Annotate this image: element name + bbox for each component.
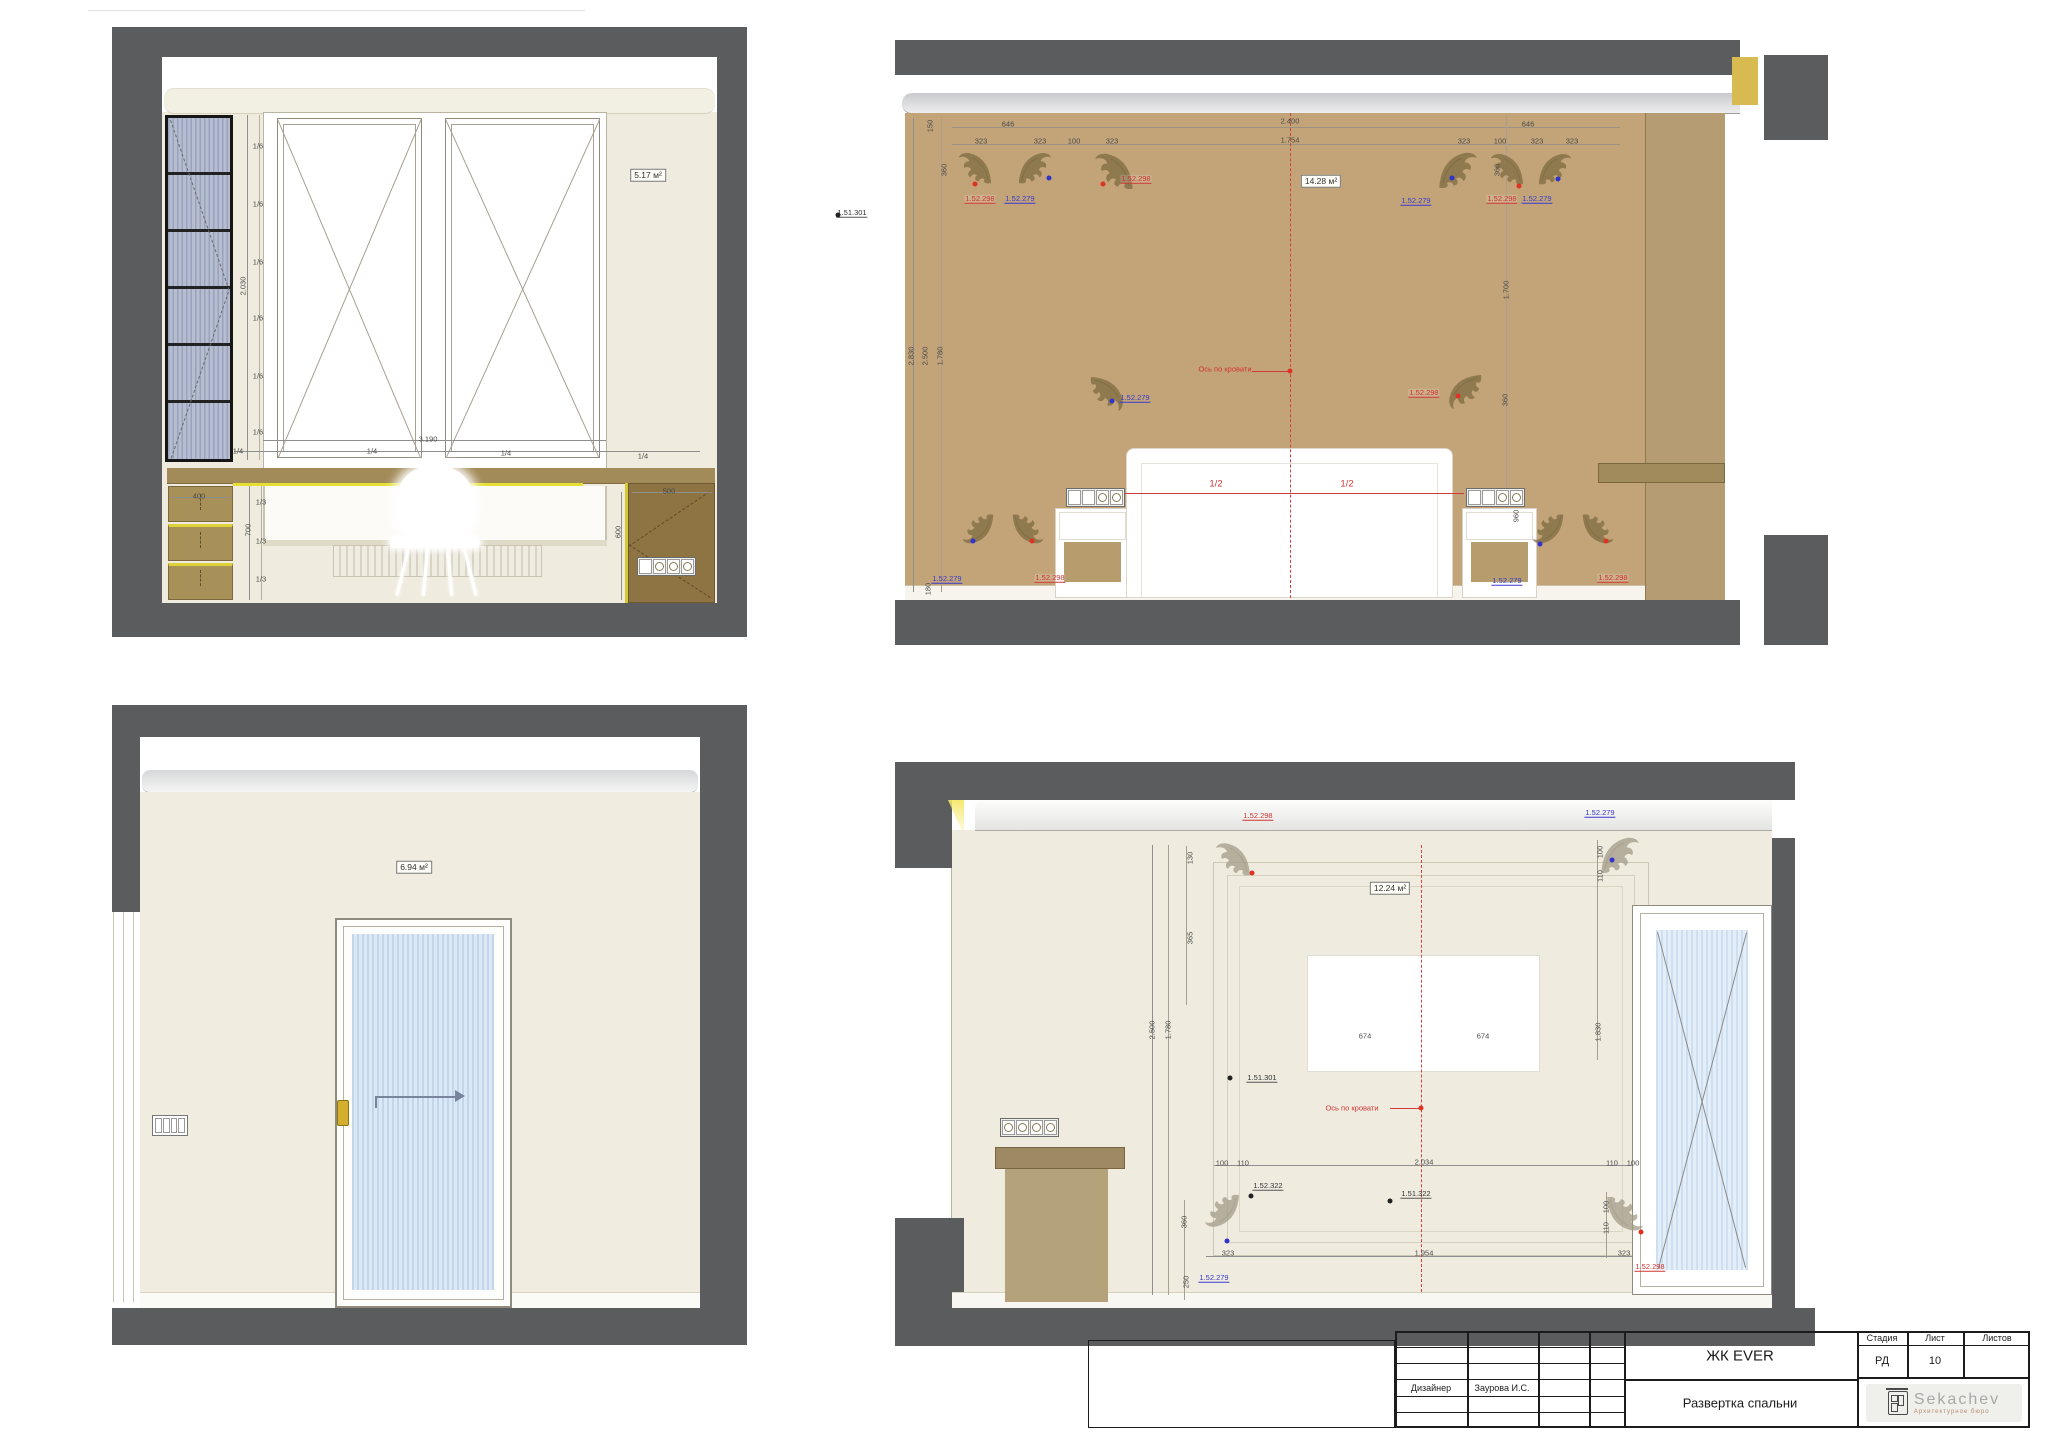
sekachev-logo: Sekachev Архитектурное бюро (1866, 1384, 2022, 1422)
dim-label: 2.030 (239, 277, 247, 296)
logo-text: Sekachev (1914, 1391, 2000, 1409)
ref-label: 1.51.322 (1400, 1190, 1431, 1199)
dim-label: 400 (193, 492, 206, 500)
dim-label: 130 (1186, 852, 1194, 865)
dim-label: 646 (1002, 120, 1015, 128)
dim-label: 1/3 (256, 575, 266, 583)
wall-section (1764, 55, 1828, 140)
ceiling-light (1732, 57, 1758, 105)
ref-label: 1.52.322 (1252, 1182, 1283, 1191)
ref-dot (971, 539, 976, 544)
project-name: ЖК EVER (1706, 1348, 1774, 1365)
ornament-icon (960, 512, 996, 548)
dim-label: 1/6 (253, 142, 263, 150)
radiator (333, 545, 542, 577)
dim-label: 180 (924, 583, 932, 596)
dim-line (1186, 846, 1187, 1005)
logo-subtext: Архитектурное бюро (1914, 1409, 2000, 1415)
wall-section (700, 705, 747, 1345)
revision-table (1088, 1340, 1395, 1428)
dim-label: 1/4 (638, 452, 648, 460)
tv-panel (1307, 955, 1540, 1072)
dim-line (249, 486, 250, 600)
ref-dot (1517, 184, 1522, 189)
dim-label: 323 (1106, 137, 1119, 145)
ornament-icon (1436, 147, 1480, 191)
ornament-icon (1202, 1192, 1242, 1232)
crown-molding (142, 770, 698, 793)
ref-label: 1.51.301 (1246, 1074, 1277, 1083)
ref-dot (1228, 1076, 1233, 1081)
floor-slab (895, 600, 1740, 645)
door-frame-edge (123, 912, 124, 1302)
dim-line (234, 451, 700, 452)
dim-label: 1.700 (1502, 281, 1510, 300)
dim-label: 100 (1068, 137, 1081, 145)
dim-label: 110 (1606, 1159, 1618, 1167)
ref-label: 1.52.298 (1120, 175, 1151, 184)
ceiling-slab (112, 705, 747, 737)
stamp-line (1963, 1331, 1965, 1377)
area-label: 5.17 м² (630, 169, 666, 182)
dim-label: 360 (940, 164, 948, 177)
dim-label: 323 (1034, 137, 1047, 145)
ref-dot (1450, 176, 1455, 181)
ref-dot (1556, 177, 1561, 182)
dim-label: 100 (1602, 1201, 1610, 1214)
dim-label: 1/6 (253, 372, 263, 380)
ref-dot (1538, 542, 1543, 547)
dim-label: 110 (1596, 870, 1604, 882)
ornament-icon (1444, 372, 1484, 412)
ref-dot (973, 182, 978, 187)
dim-label: 1.830 (1594, 1023, 1602, 1042)
ref-dot (1047, 176, 1052, 181)
ref-dot (1419, 1106, 1424, 1111)
ref-label: 1.52.298 (1408, 389, 1439, 398)
ref-dot (1456, 394, 1461, 399)
ref-dot (1639, 1230, 1644, 1235)
dim-label: 360 (1180, 1216, 1188, 1229)
ref-dot (1604, 539, 1609, 544)
dim-label: 365 (1186, 932, 1194, 945)
dim-label: 1/6 (253, 258, 263, 266)
dim-label: 1/6 (253, 428, 263, 436)
dim-label: 110 (1237, 1159, 1249, 1167)
dim-line (259, 115, 260, 460)
wall-corner-edge (951, 868, 952, 1218)
dim-label: 3.190 (419, 435, 438, 443)
ref-label: 1.52.298 (964, 195, 995, 204)
ornament-icon (1536, 149, 1574, 187)
dim-label: 1.954 (1415, 1249, 1434, 1257)
axis-leader (1252, 371, 1288, 372)
ref-dot (1225, 1239, 1230, 1244)
ref-label: 1.51.301 (836, 209, 867, 218)
floor-slab (112, 603, 747, 637)
ornament-icon (1010, 512, 1046, 548)
wall-section (1772, 838, 1795, 1310)
stamp-line (1624, 1379, 1857, 1381)
door-handle (337, 1100, 349, 1126)
switch-icon (152, 1115, 188, 1136)
door-frame-edge (113, 912, 114, 1302)
axis-line (1290, 113, 1291, 598)
ceiling-slab (895, 762, 1795, 800)
ref-label: 1.52.279 (1584, 809, 1615, 818)
dim-label: 960 (1512, 510, 1520, 523)
door-frame-edge (133, 912, 134, 1302)
ornament-icon (1092, 148, 1136, 192)
axis-leader (1390, 1108, 1419, 1109)
ref-dot (1110, 399, 1115, 404)
dim-line (621, 492, 622, 600)
dim-label: 2.830 (907, 347, 915, 366)
dim-label: 100 (1596, 846, 1604, 859)
wardrobe-glass-cabinet (165, 115, 233, 462)
nightstand (1055, 508, 1130, 598)
area-label: 14.28 м² (1301, 175, 1341, 188)
dim-label: 2.400 (1281, 117, 1300, 125)
dim-label: 323 (975, 137, 988, 145)
dim-label: 1/6 (253, 200, 263, 208)
dim-label: 2.034 (1415, 1158, 1434, 1166)
cabinet (628, 483, 715, 603)
opening-dash-line (200, 532, 201, 548)
socket-icon (637, 557, 696, 576)
drawing-title: Развертка спальни (1683, 1396, 1798, 1411)
dim-label: 323 (1618, 1249, 1631, 1257)
axis-label: Ось по кровати (1325, 1104, 1378, 1112)
dim-label: 1/3 (256, 498, 266, 506)
stage-label: Стадия (1867, 1333, 1898, 1343)
ref-dot (1101, 182, 1106, 187)
dresser-top (995, 1147, 1125, 1169)
stage-value: РД (1875, 1355, 1889, 1367)
dim-label: 2.500 (1148, 1021, 1156, 1040)
dim-line (1152, 845, 1153, 1295)
dresser (1005, 1169, 1108, 1302)
dim-line (1168, 845, 1169, 1295)
dim-label: 323 (1566, 137, 1579, 145)
ref-dot (1250, 871, 1255, 876)
dim-label: 360 (1493, 164, 1501, 177)
dim-label: 1/4 (501, 449, 511, 457)
open-direction-arrow (375, 1096, 377, 1108)
dim-label: 100 (1494, 137, 1507, 145)
sheet-value: 10 (1929, 1355, 1941, 1367)
designer-name: Заурова И.С. (1475, 1383, 1530, 1393)
crown-molding (975, 800, 1772, 831)
dim-label: 1.780 (1164, 1021, 1172, 1040)
arrowhead-icon (455, 1090, 465, 1102)
ref-dot (1388, 1199, 1393, 1204)
stamp-line (1395, 1396, 1624, 1397)
dim-label: 674 (1477, 1032, 1490, 1040)
dim-label: 700 (244, 524, 252, 537)
stamp-line (1395, 1347, 1624, 1348)
dim-label: 1.754 (1281, 136, 1300, 144)
ref-label: 1.52.279 (1004, 195, 1035, 204)
stamp-line (1395, 1363, 1624, 1364)
wall-section (717, 27, 747, 637)
area-label: 6.94 м² (396, 861, 432, 874)
open-direction-arrow (375, 1096, 460, 1098)
stamp-line (1857, 1345, 2030, 1346)
wall-shelf (1598, 463, 1725, 483)
ref-dot (1249, 1194, 1254, 1199)
dim-label: 674 (1359, 1032, 1372, 1040)
ref-label: 1.52.279 (1400, 197, 1431, 206)
desk-chair (396, 466, 474, 542)
axis-line (1421, 845, 1422, 1292)
ref-dot (1030, 539, 1035, 544)
ref-label: 1.52.298 (1634, 1263, 1665, 1272)
dim-label: 100 (1216, 1159, 1229, 1167)
dim-label: 1.780 (936, 347, 944, 366)
dim-label: 323 (1531, 137, 1544, 145)
dim-label: 323 (1222, 1249, 1235, 1257)
curtain-box (164, 88, 715, 114)
dim-line (952, 127, 1620, 128)
ornament-icon (1580, 512, 1616, 548)
wall-section (1764, 535, 1828, 645)
column-panel (1645, 113, 1725, 600)
ref-label: 1.52.298 (1034, 574, 1065, 583)
sheet-fold-line (88, 10, 585, 11)
dim-label: 500 (663, 487, 676, 495)
ref-dot (1610, 858, 1615, 863)
wall-section (112, 27, 162, 637)
area-label: 12.24 м² (1370, 882, 1410, 895)
ref-dot (1288, 369, 1293, 374)
ceiling-slab (112, 27, 747, 57)
socket-icon (1066, 488, 1125, 507)
socket-icon (1000, 1118, 1059, 1137)
ornament-icon (956, 148, 994, 186)
stamp-line (1907, 1331, 1909, 1377)
ref-dot (836, 213, 841, 218)
dim-label: 600 (614, 526, 622, 539)
ornament-icon (1530, 512, 1566, 548)
dim-label: 1/4 (233, 447, 243, 455)
ceiling-slab (895, 40, 1740, 75)
sheet-label: Лист (1925, 1333, 1945, 1343)
dim-label: 1/6 (253, 314, 263, 322)
opening-dash-line (200, 570, 201, 586)
chair-seat (390, 538, 480, 548)
dim-label: 360 (1501, 394, 1509, 407)
drawing-sheet: { "titleblock": { "project": "ЖК EVER", … (0, 0, 2048, 1448)
ref-label: 1.52.279 (1198, 1274, 1229, 1283)
dim-label: 100 (1627, 1159, 1640, 1167)
half-split-label: 1/2 (1340, 479, 1353, 489)
dim-label: 150 (926, 120, 934, 133)
ref-label: 1.52.279 (1491, 577, 1522, 586)
half-split-label: 1/2 (1209, 479, 1222, 489)
dim-label: 250 (1182, 1276, 1190, 1289)
ref-label: 1.52.298 (1597, 574, 1628, 583)
socket-icon (1466, 488, 1525, 507)
crown-molding (902, 93, 1740, 114)
sheets-label: Листов (1982, 1333, 2011, 1343)
wall-section (112, 705, 140, 912)
door-panel (352, 934, 494, 1290)
axis-label: Ось по кровати (1198, 365, 1251, 373)
dim-label: 110 (1602, 1222, 1610, 1234)
stamp-line (1857, 1377, 2030, 1379)
dim-label: 646 (1522, 120, 1535, 128)
ref-label: 1.52.279 (1119, 394, 1150, 403)
ref-label: 1.52.279 (1521, 195, 1552, 204)
half-split-line (1122, 493, 1464, 494)
dim-label: 2.500 (921, 347, 929, 366)
stamp-line (1395, 1412, 1624, 1413)
dim-label: 1/4 (367, 447, 377, 455)
stamp-line (1395, 1379, 1624, 1380)
wall-section (895, 762, 952, 868)
logo-building-icon (1888, 1391, 1908, 1415)
floor-slab (112, 1308, 747, 1345)
dim-label: 323 (1458, 137, 1471, 145)
ornament-icon (1213, 838, 1253, 878)
designer-label: Дизайнер (1411, 1383, 1451, 1393)
ref-label: 1.52.279 (931, 575, 962, 584)
ref-label: 1.52.298 (1242, 812, 1273, 821)
ref-label: 1.52.298 (1486, 195, 1517, 204)
dim-label: 1/3 (256, 537, 266, 545)
ornament-icon (1598, 832, 1642, 876)
